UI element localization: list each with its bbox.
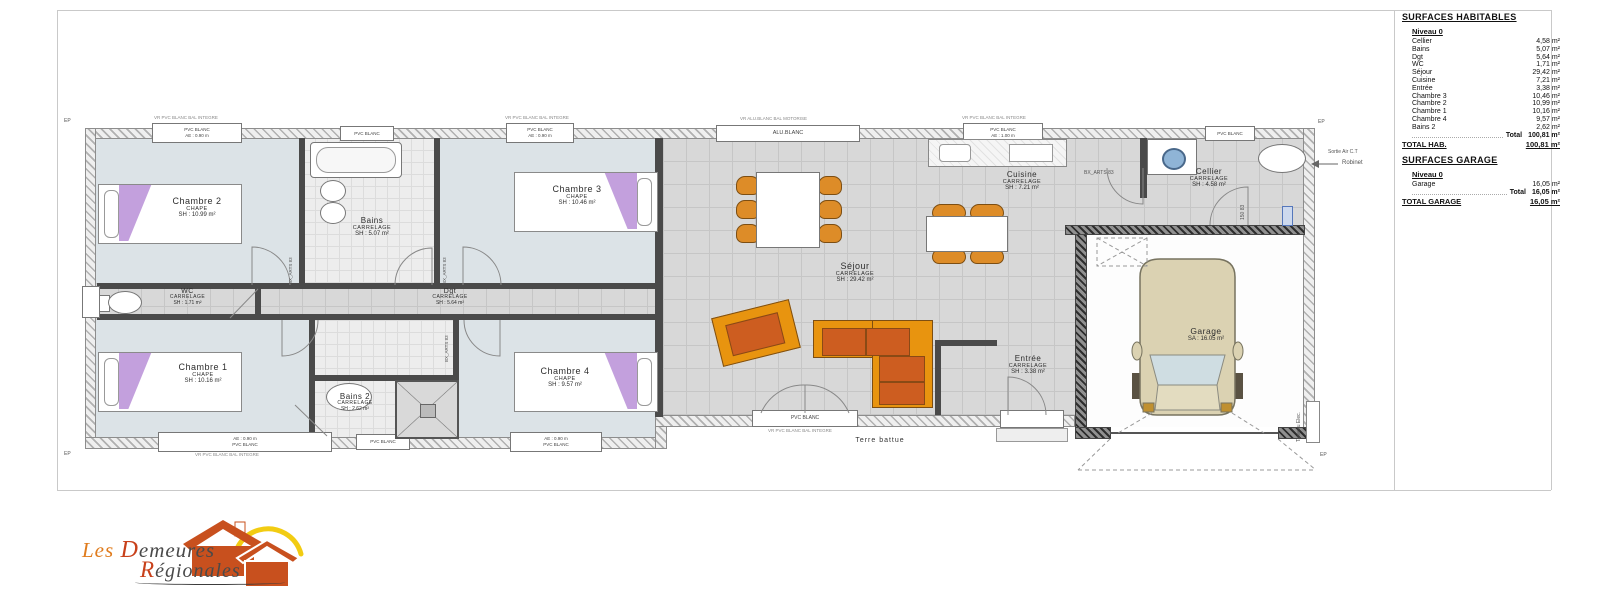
window: PVC BLANC AE : 0.90 m <box>510 432 602 452</box>
garage-panel-level: Niveau 0 <box>1412 170 1560 179</box>
door-ref-label: BX_ARTS 83 <box>444 324 449 362</box>
surface-row: Cuisine7,21 m² <box>1412 77 1560 85</box>
surface-row: Cellier4,58 m² <box>1412 38 1560 46</box>
window-note: VR PVC BLANC BAL INTEGRE <box>195 452 259 457</box>
room-area: SH : 2.62 m² <box>305 407 405 412</box>
surface-row: Garage16,05 m² <box>1412 181 1560 189</box>
room-area: SH : 1.71 m² <box>140 301 235 306</box>
door-ref-label: BX_ARTS 83 <box>1084 170 1114 176</box>
room-area: SA : 16.05 m² <box>1146 336 1266 342</box>
window-size: AE : 0.90 m <box>507 133 573 139</box>
tableau-elec-label: Tableau Elec. <box>1296 402 1302 442</box>
car-headlight <box>1143 403 1154 412</box>
pillow <box>104 190 119 238</box>
blueprint-canvas: PVC BLANC AE : 0.90 m VR PVC BLANC BAL I… <box>0 0 1600 600</box>
window-note: VR PVC BLANC BAL INTEGRE <box>505 115 569 120</box>
window-label: PVC BLANC <box>357 439 409 445</box>
sortie-air-label: Sortie Air C.T <box>1328 149 1358 155</box>
wall <box>97 314 657 320</box>
sofa-cushion <box>879 382 925 405</box>
panel-title: SURFACES HABITABLES <box>1402 12 1560 22</box>
room-label-chambre4: Chambre 4 CHAPE SH : 9.57 m² <box>505 366 625 388</box>
window-note: VR PVC BLANC BAL INTEGRE <box>768 428 832 433</box>
window-label: PVC BLANC <box>1206 131 1254 137</box>
total-hab-row: TOTAL HAB.100,81 m² <box>1402 140 1560 149</box>
wall <box>85 128 1315 139</box>
chair <box>818 224 842 243</box>
window-size: AE : 0.90 m <box>153 133 241 139</box>
chair <box>818 176 842 195</box>
window: PVC BLANC AE : 0.90 m <box>506 123 574 143</box>
french-door: PVC BLANC <box>752 410 858 427</box>
window-label: ALU.BLANC <box>717 130 859 137</box>
room-name: Chambre 3 <box>517 184 637 194</box>
toilet <box>108 291 142 314</box>
surface-row: Bains 22,62 m² <box>1412 124 1560 132</box>
logo-cap-r: R <box>140 557 155 582</box>
garage-total-row: Total16,05 m² <box>1412 189 1560 198</box>
window-label: PVC BLANC <box>341 131 393 137</box>
house-roof-icon <box>237 540 299 563</box>
wall <box>1140 138 1147 198</box>
armchair-cushion <box>725 312 785 356</box>
wall <box>1303 128 1315 439</box>
kitchen-table <box>926 216 1008 252</box>
wall <box>935 340 941 415</box>
kitchen-sink <box>1009 144 1053 162</box>
garage-panel-title: SURFACES GARAGE <box>1402 155 1560 165</box>
sofa-cushion <box>822 328 866 356</box>
logo-cap-d: D <box>120 536 138 563</box>
wall-garage-left <box>1075 225 1087 439</box>
wall <box>434 138 440 286</box>
room-label-chambre2: Chambre 2 CHAPE SH : 10.99 m² <box>137 196 257 218</box>
window-label: PVC BLANC <box>159 442 331 448</box>
wall <box>935 340 997 346</box>
room-area: SH : 10.46 m² <box>517 200 637 206</box>
window <box>82 286 100 318</box>
room-label-chambre3: Chambre 3 CHAPE SH : 10.46 m² <box>517 184 637 206</box>
sofa-cushion <box>879 356 925 382</box>
car-hood <box>1155 385 1220 410</box>
surface-row: Chambre 310,46 m² <box>1412 93 1560 101</box>
dimension-label: 150 83 <box>1240 188 1246 220</box>
window: PVC BLANC AE : 0.90 m <box>158 432 332 452</box>
room-name: Chambre 2 <box>137 196 257 206</box>
window: PVC BLANC <box>340 126 394 141</box>
wall <box>1075 427 1111 439</box>
climate-unit <box>1282 206 1293 226</box>
robinet-label: Robinet <box>1342 160 1363 166</box>
surface-row: Bains5,07 m² <box>1412 46 1560 54</box>
frame-left <box>57 10 58 490</box>
window-label: PVC BLANC <box>753 415 857 421</box>
surface-row: WC1,71 m² <box>1412 61 1560 69</box>
car-wheel <box>1132 373 1140 399</box>
room-area: SH : 4.58 m² <box>1149 182 1269 188</box>
car-mirror <box>1233 342 1243 360</box>
window: PVC BLANC AE : 0.90 m <box>152 123 242 143</box>
window-note: VR ALU.BLANC BAL MOTORISE <box>740 116 807 121</box>
room-area: SH : 10.99 m² <box>137 212 257 218</box>
sofa-cushion <box>866 328 910 356</box>
room-label-cuisine: Cuisine CARRELAGE SH : 7.21 m² <box>962 170 1082 191</box>
logo-underline <box>135 580 285 585</box>
room-label-cellier: Cellier CARRELAGE SH : 4.58 m² <box>1149 167 1269 188</box>
ep-label: EP <box>1320 452 1327 458</box>
bathtub <box>310 142 402 178</box>
room-name: Séjour <box>795 261 915 271</box>
logo-word-egionales: égionales <box>155 560 241 582</box>
door-ref-label: BX_ARTS 83 <box>442 246 447 284</box>
room-label-dgt: Dgt CARRELAGE SH : 5.64 m² <box>400 288 500 306</box>
room-label-chambre1: Chambre 1 CHAPE SH : 10.16 m² <box>143 362 263 384</box>
room-name: Cuisine <box>962 170 1082 179</box>
panel-level: Niveau 0 <box>1412 27 1560 36</box>
surface-row: Chambre 210,99 m² <box>1412 100 1560 108</box>
shower-drain <box>420 404 436 418</box>
window-note: VR PVC BLANC BAL INTEGRE <box>154 115 218 120</box>
room-label-entree: Entrée CARRELAGE SH : 3.38 m² <box>968 354 1088 375</box>
wall <box>255 283 261 320</box>
surface-row: Chambre 110,16 m² <box>1412 108 1560 116</box>
door-ref-label: BX_ARTS 83 <box>288 246 293 284</box>
window-size: AE : 1.00 m <box>964 133 1042 139</box>
surface-row: Entrée3,38 m² <box>1412 85 1560 93</box>
surface-row: Chambre 49,57 m² <box>1412 116 1560 124</box>
ep-label: EP <box>64 451 71 457</box>
surfaces-panel: SURFACES HABITABLES Niveau 0 Cellier4,58… <box>1402 12 1560 206</box>
room-label-bains: Bains CARRELAGE SH : 5.07 m² <box>322 216 422 237</box>
chair <box>818 200 842 219</box>
logo-word-les: Les <box>82 538 114 562</box>
front-door <box>1000 410 1064 428</box>
room-area: SH : 29.42 m² <box>795 277 915 283</box>
terre-battue-label: Terre battue <box>815 437 945 444</box>
room-area: SH : 3.38 m² <box>968 369 1088 375</box>
bay-window: ALU.BLANC <box>716 125 860 142</box>
room-name: Garage <box>1146 326 1266 336</box>
total-row: Total100,81 m² <box>1412 132 1560 141</box>
room-label-garage: Garage SA : 16.05 m² <box>1146 326 1266 342</box>
frame-top <box>57 10 1551 11</box>
room-label-wc: WC CARRELAGE SH : 1.71 m² <box>140 288 235 306</box>
room-name: Chambre 4 <box>505 366 625 376</box>
pillow <box>637 178 652 226</box>
wall-garage-top <box>1065 225 1305 235</box>
surface-row: Séjour29,42 m² <box>1412 69 1560 77</box>
ep-label: EP <box>64 118 71 124</box>
room-area: SH : 5.64 m² <box>400 301 500 306</box>
car-wheel <box>1235 373 1243 399</box>
porch-step <box>996 428 1068 442</box>
pillow <box>104 358 119 406</box>
room-area: SH : 7.21 m² <box>962 185 1082 191</box>
room-label-bains2: Bains 2 CARRELAGE SH : 2.62 m² <box>305 393 405 412</box>
ep-label: EP <box>1318 119 1325 125</box>
window: PVC BLANC <box>1205 126 1255 141</box>
car-headlight <box>1221 403 1232 412</box>
room-name: Chambre 1 <box>143 362 263 372</box>
room-name: Bains <box>322 216 422 225</box>
cooktop <box>939 144 971 162</box>
window-label: PVC BLANC <box>511 442 601 448</box>
frame-bottom <box>57 490 1551 491</box>
window-note: VR PVC BLANC BAL INTEGRE <box>962 115 1026 120</box>
room-name: Cellier <box>1149 167 1269 176</box>
room-area: SH : 5.07 m² <box>322 231 422 237</box>
kitchen-counter <box>928 139 1067 167</box>
car-windshield <box>1150 355 1225 385</box>
electrical-panel <box>1306 401 1320 443</box>
room-area: SH : 9.57 m² <box>505 382 625 388</box>
total-garage-row: TOTAL GARAGE16,05 m² <box>1402 197 1560 206</box>
wall <box>299 138 305 286</box>
room-name: Entrée <box>968 354 1088 363</box>
pillow <box>637 358 652 406</box>
room-area: SH : 10.16 m² <box>143 378 263 384</box>
dining-table <box>756 172 820 248</box>
surface-row: Dgt5,64 m² <box>1412 54 1560 62</box>
sink <box>320 180 346 202</box>
frame-panel-divider <box>1394 10 1395 490</box>
company-logo: Les Demeures Régionales <box>80 512 330 594</box>
car-mirror <box>1132 342 1142 360</box>
room-label-sejour: Séjour CARRELAGE SH : 29.42 m² <box>795 261 915 283</box>
